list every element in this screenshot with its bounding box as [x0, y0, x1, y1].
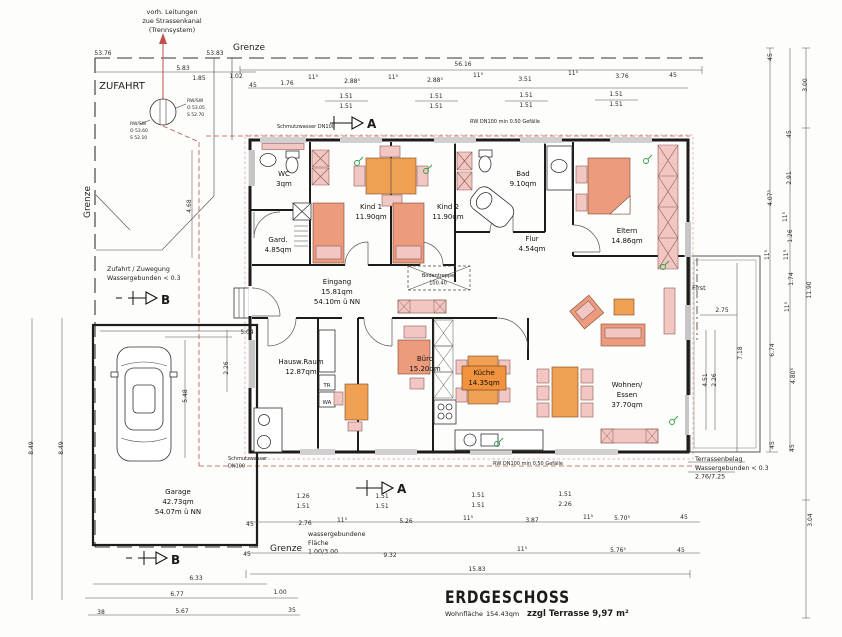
annotation: 1.00/3.00: [308, 549, 338, 556]
car: [111, 347, 177, 461]
dimension-label: 2.26: [223, 361, 230, 375]
room-label: WC: [278, 170, 290, 178]
section-marker-b-bottom: B: [126, 551, 180, 567]
annotation: O 53.60: [130, 128, 148, 134]
dimension-label: 4.80⁵: [790, 368, 797, 384]
annotation: Zufahrt / Zuwegung: [107, 266, 170, 273]
dimension-label: 11⁵: [784, 301, 791, 312]
room-label: Büro: [417, 355, 433, 363]
annotation: RW DN100 min 0.50 Gefälle: [470, 119, 540, 125]
dimension-label: 3.76: [615, 73, 629, 80]
title-block: ERDGESCHOSS Wohnfläche 154.43qm zzgl Ter…: [445, 588, 629, 619]
living-area-label: Wohnfläche: [445, 610, 483, 618]
section-marker-a-top: A: [330, 116, 377, 131]
dimension-label: 2.26: [711, 373, 718, 387]
dimension-label: 2.76: [298, 520, 312, 527]
dimension-label: 1.76: [280, 80, 294, 87]
terrace-note: zzgl Terrasse 9,97 m²: [527, 609, 629, 619]
sideboard: [601, 429, 658, 443]
room-label: Wohnen/: [612, 381, 643, 389]
dimension-label: 11.90: [806, 281, 813, 298]
manhole-icon: [140, 99, 186, 125]
dimension-label: 45: [249, 82, 257, 89]
annotation: Schmutzwasser: [228, 456, 268, 462]
room-label: 4.54qm: [519, 245, 546, 253]
dimension-label: 53.83: [206, 50, 223, 57]
dimension-label: 1.51: [519, 92, 533, 99]
dimension-label: 11⁵: [583, 514, 594, 521]
room-label: 54.07m ü NN: [155, 508, 201, 516]
room-label: 37.70qm: [611, 401, 642, 409]
dimension-label: 45: [677, 547, 685, 554]
room-label: 11.90qm: [355, 213, 386, 221]
dimension-label: 2.75: [715, 307, 729, 314]
dimension-label: 1.51: [375, 503, 389, 510]
dimension-label: 11⁵: [764, 249, 771, 260]
annotation: Schmutzwasser DN100: [277, 124, 335, 130]
room-label: Kind 1: [360, 203, 382, 211]
room-label-kitchen: 14.35qm: [468, 379, 499, 387]
entrance-steps: [234, 288, 250, 318]
dimension-label: 1.26: [787, 229, 794, 243]
dimension-label: 11⁵: [782, 211, 789, 222]
annotation: Bodentreppe: [422, 273, 454, 279]
dimension-label: 2.26: [558, 501, 572, 508]
room-label: Kind 2: [437, 203, 459, 211]
armchair: [570, 295, 604, 329]
room-label: 3qm: [276, 180, 292, 188]
dimension-label: 5.76⁵: [610, 547, 626, 554]
kitchen-cabinets: [434, 320, 453, 398]
dimension-label: 11⁵: [337, 517, 348, 524]
section-label: A: [397, 482, 407, 496]
dimension-label: 1.51: [609, 101, 623, 108]
dimension-label: 3.51: [518, 76, 532, 83]
dimension-label: 45: [246, 521, 254, 528]
dimension-label: 45: [767, 53, 774, 61]
radiator: [262, 144, 304, 150]
annotation: zue Strassenkanal: [142, 17, 202, 25]
dimension-label: 1.85: [192, 75, 206, 82]
annotation: S 52.10: [130, 135, 147, 141]
wardrobe-icon: [312, 150, 329, 185]
dimension-label: 3.04: [807, 513, 814, 527]
annotation: Grenze: [233, 43, 265, 53]
dimension-label: 53.76: [94, 50, 111, 57]
dimension-label: 1.00: [273, 589, 287, 596]
dimension-label: 11⁵: [568, 70, 579, 77]
dimension-label: 11⁵: [308, 74, 319, 81]
dimension-label: 1.51: [471, 502, 485, 509]
dimension-label: 15.83: [468, 566, 485, 573]
living-area-value: 154.43qm: [486, 610, 519, 618]
dimension-label: 1.51: [471, 492, 485, 499]
annotations: vorh. Leitungenzue Strassenkanal(Trennsy…: [83, 8, 769, 556]
annotation: WA: [323, 400, 332, 406]
dimension-label: 6.74: [769, 343, 776, 357]
room-label: Eltern: [617, 227, 638, 235]
dimension-label: 5.83: [176, 65, 190, 72]
dimension-label: 1.51: [609, 91, 623, 98]
dimension-label: 11⁵: [517, 546, 528, 553]
room-label: 15.20qm: [409, 365, 440, 373]
room-label-kitchen: Küche: [473, 369, 494, 377]
room-label: 12.87qm: [285, 368, 316, 376]
dimension-label: 1.02: [229, 73, 243, 80]
annotation: TR: [322, 383, 330, 389]
dimension-label: 35: [288, 607, 296, 614]
dimension-label: 1.51: [339, 103, 353, 110]
section-label: B: [171, 553, 180, 567]
room-label: 9.10qm: [510, 180, 537, 188]
sink-icon: [260, 154, 276, 167]
annotation: S 52.70: [187, 112, 204, 118]
side-table: [614, 299, 634, 315]
dimension-label: 45: [786, 130, 793, 138]
section-arrow-icon: [352, 117, 363, 129]
dimension-label: 6.77: [170, 591, 184, 598]
dimension-label: 1.51: [339, 93, 353, 100]
annotation: Wassergebunden < 0.3: [107, 275, 181, 282]
dimension-label: 9.32: [383, 552, 397, 559]
dimension-label: 11⁵: [388, 74, 399, 81]
dimension-label: 8.49: [58, 441, 65, 455]
dimension-label: 1.74: [788, 272, 795, 286]
section-arrow-icon: [156, 552, 167, 564]
pipe-arrow-icon: [159, 33, 167, 44]
room-label: 42.73qm: [162, 498, 193, 506]
dimension-label: 45: [243, 551, 251, 558]
dimension-label: 4.68: [186, 199, 193, 213]
room-label: Garage: [165, 488, 191, 496]
dimension-label: 1.51: [429, 103, 443, 110]
dimension-label: 11⁵: [783, 249, 790, 260]
annotation: 100.40: [429, 281, 447, 287]
room-label: 14.86qm: [611, 237, 642, 245]
bathtub-icon: [467, 183, 518, 231]
section-label: A: [367, 117, 377, 131]
dimension-label: 5.04: [240, 329, 254, 336]
annotation: First: [692, 284, 706, 292]
dimension-label: 4.07⁵: [767, 190, 774, 206]
dimension-label: 1.51: [429, 93, 443, 100]
room-label: 54.10m ü NN: [314, 298, 360, 306]
dimension-label: 5.67: [175, 608, 189, 615]
dimension-label: 1.51: [558, 491, 572, 498]
dimension-label: 1.26: [296, 493, 310, 500]
room-label: 11.90qm: [432, 213, 463, 221]
sink-icon: [464, 434, 476, 446]
dimension-label: 8.49: [28, 441, 35, 455]
wardrobe-icon: [658, 145, 678, 269]
room-label: Eingang: [323, 278, 351, 286]
room-label: 15.81qm: [321, 288, 352, 296]
room-label: Essen: [617, 391, 637, 399]
dimension-label: 11⁵: [473, 72, 484, 79]
closet-icon: [293, 203, 311, 220]
annotation: RW DN100 min 0.50 Gefälle: [493, 461, 563, 467]
dimension-label: 45: [769, 441, 776, 449]
dimension-label: 1.51: [296, 503, 310, 510]
room-label: Bad: [516, 170, 530, 178]
annotation: Terrassenbelag: [694, 456, 742, 463]
dimension-label: 38: [97, 609, 105, 616]
dimension-label: 45: [789, 444, 796, 452]
dimension-label: 1.51: [519, 102, 533, 109]
section-arrow-icon: [146, 292, 157, 304]
annotation: O 53.05: [187, 105, 205, 111]
annotation: RW/SW: [187, 98, 204, 104]
dimension-label: 6.33: [189, 575, 203, 582]
dimension-label: 5.70⁵: [614, 515, 630, 522]
annotation: ZUFAHRT: [99, 81, 146, 92]
dimension-label: 7.18: [737, 346, 744, 360]
section-marker-b-left: B: [116, 291, 170, 307]
dimension-label: 5.26: [399, 518, 413, 525]
table: [345, 384, 368, 420]
dimension-label: 56.16: [454, 61, 471, 68]
annotation: vorh. Leitungen: [147, 8, 198, 16]
dimension-label: 2.88⁵: [427, 77, 443, 84]
annotation: 2.76/7.25: [695, 474, 725, 481]
dimension-label: 1.51: [375, 493, 389, 500]
section-label: B: [161, 293, 170, 307]
room-label: 4.85qm: [265, 246, 292, 254]
sideboard: [398, 300, 446, 313]
room-label: Gard.: [268, 236, 287, 244]
dimension-label: 2.91: [786, 171, 793, 185]
dimension-label: 2.88⁵: [344, 78, 360, 85]
annotation: (Trennsystem): [149, 26, 195, 34]
dimension-label: 3.87: [525, 517, 539, 524]
annotation: Grenze: [270, 544, 302, 554]
floor-plan-drawing: A A B B 56.161.851.02451.7611⁵2.88⁵11⁵2.…: [0, 0, 842, 637]
annotation: Wassergebunden < 0.3: [695, 465, 769, 472]
dimension-label: 45: [669, 72, 677, 79]
annotation: Fläche: [308, 540, 329, 547]
floor-plan-page: A A B B 56.161.851.02451.7611⁵2.88⁵11⁵2.…: [0, 0, 842, 637]
room-label: Flur: [525, 235, 538, 243]
annotation: wassergebundene: [308, 531, 366, 538]
dimension-label: 3.00: [802, 78, 809, 92]
annotation: DN100: [228, 464, 245, 470]
annotation: RW/SW: [130, 121, 147, 127]
toilet-icon: [479, 156, 491, 172]
annotation: Grenze: [83, 186, 93, 218]
dining-table: [552, 367, 578, 417]
dimension-label: 5.48: [182, 389, 189, 403]
wardrobe-icon: [457, 152, 472, 190]
page-title: ERDGESCHOSS: [445, 588, 570, 608]
dimension-label: 11⁵: [463, 515, 474, 522]
dimension-label: 45: [680, 514, 688, 521]
dimension-label: 4.51: [702, 373, 709, 387]
sink-icon: [551, 160, 567, 173]
room-label: Hausw.Raum: [278, 358, 323, 366]
